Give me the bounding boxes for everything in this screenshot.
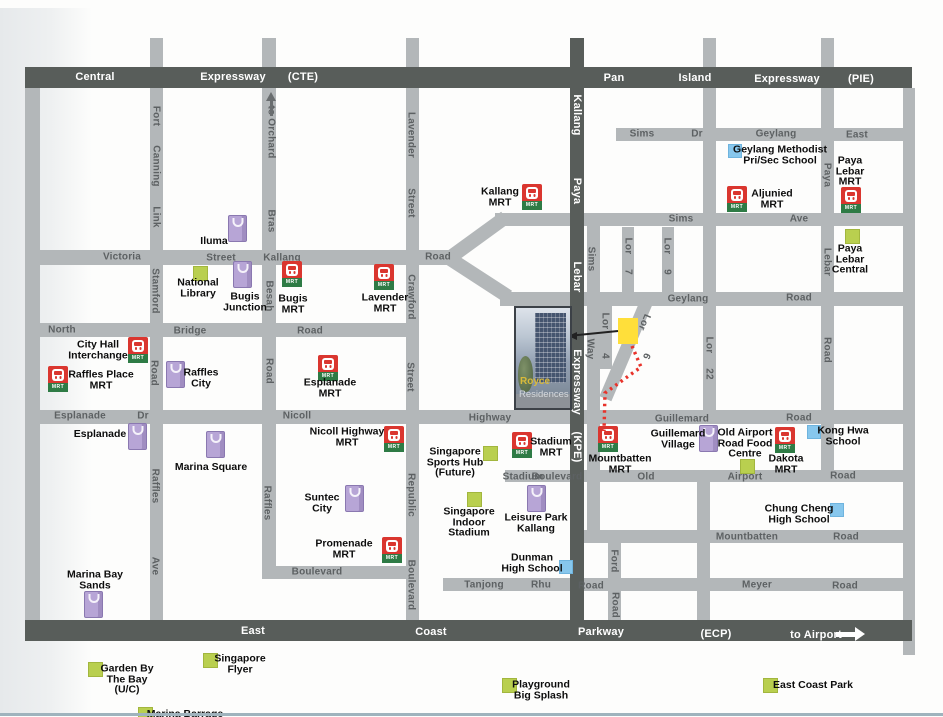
train-icon [841, 187, 861, 204]
train-icon [128, 337, 148, 354]
road-label-island: Island [679, 72, 712, 84]
label-line: High School [765, 514, 834, 525]
label-line: Leisure Park [504, 513, 567, 524]
road-label-nicoll: Nicoll [283, 411, 311, 422]
label-line: Junction [223, 302, 267, 313]
road-label--pie-: (PIE) [848, 73, 874, 85]
label-line: Lavender [362, 293, 409, 304]
road-label-way: Way [585, 339, 596, 360]
road-label-east: East [846, 130, 868, 141]
label-line: Stadium [530, 437, 571, 448]
train-icon [48, 366, 68, 383]
train-icon [382, 537, 402, 554]
label-line: Marina Bay [67, 570, 123, 581]
lavender-mrt-label: LavenderMRT [362, 293, 409, 314]
road-label-paya: Paya [822, 163, 833, 187]
label-line: Bugis [223, 292, 267, 303]
road-label-lebar: Lebar [822, 248, 833, 276]
label-line: Marina Square [175, 462, 247, 473]
iluma-building-icon [228, 215, 247, 242]
train-glyph [132, 340, 144, 352]
singapore-sports-hub-park-icon [483, 446, 498, 461]
promenade-mrt-icon: MRT [382, 537, 402, 563]
train-icon [598, 426, 618, 443]
raffles-place-mrt-icon: MRT [48, 366, 68, 392]
mrt-badge: MRT [282, 278, 302, 287]
label-line: Dunman [501, 553, 562, 564]
stadium-mrt-icon: MRT [512, 432, 532, 458]
road-label-coast: Coast [415, 626, 447, 638]
road-label-lor: Lor [662, 238, 673, 255]
road-label-expressway: Expressway [754, 73, 820, 85]
royce-residences-photo: RoyceResidences [514, 306, 572, 410]
road-label-tanjong: Tanjong [464, 580, 504, 591]
road-label-bridge: Bridge [174, 326, 207, 337]
road-label-highway: Highway [469, 413, 512, 424]
road-label-canning: Canning [151, 145, 162, 186]
train-glyph [386, 540, 398, 552]
royce-site-marker [618, 318, 638, 344]
bugis-junction-label: BugisJunction [223, 292, 267, 313]
road-label-street: Street [206, 253, 236, 264]
label-line: Promenade [315, 539, 372, 550]
city-hall-mrt-label: City HallInterchange [68, 340, 128, 361]
national-library-label: NationalLibrary [177, 278, 218, 299]
road-lor-22-road [703, 38, 716, 418]
label-line: Paya [832, 243, 868, 254]
road-label-road: Road [786, 413, 812, 424]
train-glyph [52, 369, 64, 381]
label-line: Paya [836, 155, 865, 166]
mrt-badge: MRT [382, 554, 402, 563]
suntec-city-building-icon [345, 485, 364, 512]
label-line: MRT [278, 304, 307, 315]
label-line: Stadium [443, 527, 494, 538]
train-icon [512, 432, 532, 449]
stadium-mrt-label: StadiumMRT [530, 437, 571, 458]
label-line: Iluma [200, 236, 227, 247]
label-line: East Coast Park [773, 680, 853, 691]
road-label-boulevard: Boulevard [292, 567, 343, 578]
bugis-junction-building-icon [233, 261, 252, 288]
road-label-expressway: Expressway [571, 349, 583, 415]
suntec-city-label: SuntecCity [304, 493, 339, 514]
road-label-lavender: Lavender [406, 112, 417, 158]
road-label-fort: Fort [151, 106, 162, 126]
road-label-lor: Lor [600, 313, 611, 330]
road-label-raffles: Raffles [150, 469, 161, 504]
old-airport-road-food-centre-park-icon [740, 459, 755, 474]
road-label-paya: Paya [571, 178, 583, 205]
road-label--kpe-: (KPE) [571, 432, 583, 463]
train-icon [384, 426, 404, 443]
road-label-road: Road [297, 326, 323, 337]
road-junction-lower-diagonal [444, 252, 512, 303]
road-label--ecp-: (ECP) [701, 628, 732, 640]
label-line: Chung Cheng [765, 504, 834, 515]
label-line: Mountbatten [589, 454, 652, 465]
to-airport-arrow-icon [836, 627, 866, 641]
label-line: Esplanade [304, 378, 357, 389]
raffles-city-label: RafflesCity [183, 368, 218, 389]
road-label-east: East [241, 625, 265, 637]
road-north-bridge-road [25, 323, 415, 337]
label-line: Village [651, 439, 706, 450]
label-line: Central [832, 264, 868, 275]
label-line: Sands [67, 580, 123, 591]
road-label-9: 9 [662, 269, 673, 275]
road-label-road: Road [786, 293, 812, 304]
train-icon [775, 427, 795, 444]
singapore-flyer-label: SingaporeFlyer [214, 654, 265, 675]
label-line: Raffles [183, 368, 218, 379]
esplanade-theatre-label: Esplanade [74, 429, 127, 440]
train-glyph [845, 190, 857, 202]
road-label-rhu: Rhu [531, 580, 551, 591]
road-label-parkway: Parkway [578, 626, 624, 638]
train-glyph [779, 430, 791, 442]
road-east-coast-parkway [25, 620, 912, 641]
label-line: Garden By [100, 663, 153, 674]
road-label-republic: Republic [406, 473, 417, 517]
road-label-mountbatten: Mountbatten [716, 532, 778, 543]
marina-bay-sands-building-icon [84, 591, 103, 618]
mrt-badge: MRT [841, 204, 861, 213]
train-glyph [526, 187, 538, 199]
label-line: Centre [717, 448, 772, 459]
label-line: High School [501, 563, 562, 574]
road-label-road: Road [830, 471, 856, 482]
label-line: Kallang [481, 187, 519, 198]
label-line: Suntec [304, 493, 339, 504]
leisure-park-kallang-building-icon [527, 485, 546, 512]
label-line: MRT [530, 447, 571, 458]
mountbatten-mrt-label: MountbattenMRT [589, 454, 652, 475]
raffles-place-mrt-label: Raffles PlaceMRT [68, 370, 133, 391]
chung-cheng-high-school-label: Chung ChengHigh School [765, 504, 834, 525]
building-shape [535, 313, 566, 383]
label-line: Singapore [443, 506, 494, 517]
road-label-kallang: Kallang [571, 94, 583, 135]
road-label-ford: Ford [609, 549, 620, 572]
project-name-line2: Residences [519, 389, 569, 400]
road-label-4: 4 [600, 353, 611, 359]
road-label-road: Road [425, 252, 451, 263]
road-label-street: Street [405, 362, 416, 392]
road-label-link: Link [151, 206, 162, 227]
marina-bay-sands-label: Marina BaySands [67, 570, 123, 591]
road-label-22: 22 [704, 368, 715, 380]
road-label-to-airport: to Airport [790, 629, 842, 641]
label-line: Interchange [68, 350, 128, 361]
mrt-badge: MRT [598, 443, 618, 452]
road-label-north: North [48, 325, 76, 336]
promenade-mrt-label: PromenadeMRT [315, 539, 372, 560]
paya-lebar-central-label: PayaLebarCentral [832, 243, 868, 275]
road-label-lor: Lor [623, 238, 634, 255]
road-label-road: Road [833, 532, 859, 543]
esplanade-theatre-building-icon [128, 423, 147, 450]
label-line: City [304, 503, 339, 514]
road-label-raffles: Raffles [262, 486, 273, 521]
kong-hwa-school-label: Kong HwaSchool [817, 426, 868, 447]
label-line: Old Airport [717, 427, 772, 438]
kallang-mrt-icon: MRT [522, 184, 542, 210]
geylang-methodist-school-label: Geylang MethodistPri/Sec School [733, 145, 827, 166]
label-line: MRT [310, 437, 385, 448]
label-line: Big Splash [512, 690, 570, 701]
label-line: National [177, 278, 218, 289]
road-label-expressway: Expressway [200, 71, 266, 83]
train-icon [727, 186, 747, 203]
road-label-road: Road [832, 581, 858, 592]
label-line: Nicoll Highway [310, 427, 385, 438]
road-label-stamford: Stamford [150, 268, 161, 314]
iluma-label: Iluma [200, 236, 227, 247]
road-label-road: Road [822, 337, 833, 363]
label-line: MRT [768, 464, 803, 475]
mrt-badge: MRT [374, 281, 394, 290]
road-label-victoria: Victoria [103, 252, 141, 263]
label-line: Kallang [504, 523, 567, 534]
road-label-geylang: Geylang [756, 129, 797, 140]
road-label-road: Road [264, 358, 275, 384]
train-glyph [322, 358, 334, 370]
train-glyph [388, 429, 400, 441]
label-line: (Future) [427, 467, 484, 478]
kallang-mrt-label: KallangMRT [481, 187, 519, 208]
old-airport-road-food-centre-label: Old AirportRoad FoodCentre [717, 427, 772, 459]
label-line: Esplanade [74, 429, 127, 440]
garden-by-the-bay-label: Garden ByThe Bay(U/C) [100, 663, 153, 695]
road-label-road: Road [149, 360, 160, 386]
bugis-mrt-icon: MRT [282, 261, 302, 287]
road-label-sims: Sims [630, 129, 655, 140]
page-bottom-edge [0, 713, 943, 716]
train-glyph [378, 267, 390, 279]
dunman-high-school-label: DunmanHigh School [501, 553, 562, 574]
train-glyph [516, 435, 528, 447]
label-line: Geylang Methodist [733, 145, 827, 156]
road-right-edge-road [903, 88, 915, 655]
road-label-sims: Sims [669, 214, 694, 225]
singapore-indoor-stadium-label: SingaporeIndoorStadium [443, 506, 494, 538]
label-line: Aljunied [751, 189, 792, 200]
label-line: School [817, 436, 868, 447]
train-glyph [731, 189, 743, 201]
train-icon [318, 355, 338, 372]
label-line: Flyer [214, 664, 265, 675]
road-label-ave: Ave [150, 557, 161, 576]
esplanade-mrt-label: EsplanadeMRT [304, 378, 357, 399]
label-line: Kong Hwa [817, 426, 868, 437]
road-label-street: Street [406, 188, 417, 218]
singapore-sports-hub-label: SingaporeSports Hub(Future) [427, 446, 484, 478]
label-line: Pri/Sec School [733, 155, 827, 166]
mountbatten-mrt-icon: MRT [598, 426, 618, 452]
marina-square-building-icon [206, 431, 225, 458]
road-label-guillemard: Guillemard [655, 414, 709, 425]
road-far-left-road [25, 78, 40, 626]
road-label-sims: Sims [586, 247, 597, 272]
lavender-mrt-icon: MRT [374, 264, 394, 290]
label-line: MRT [68, 380, 133, 391]
mrt-badge: MRT [48, 383, 68, 392]
label-line: Singapore [214, 654, 265, 665]
nicoll-highway-mrt-label: Nicoll HighwayMRT [310, 427, 385, 448]
mrt-badge: MRT [512, 449, 532, 458]
label-line: MRT [362, 303, 409, 314]
label-line: Playground [512, 680, 570, 691]
road-label-bras: Bras [266, 209, 277, 232]
royce-residences-location-map: CentralExpressway(CTE)PanIslandExpresswa… [0, 0, 943, 717]
train-icon [522, 184, 542, 201]
paya-lebar-mrt-icon: MRT [841, 187, 861, 213]
road-label-road: Road [610, 592, 621, 618]
leisure-park-kallang-label: Leisure ParkKallang [504, 513, 567, 534]
label-line: Raffles Place [68, 370, 133, 381]
road-label-7: 7 [623, 269, 634, 275]
road-label-ave: Ave [790, 214, 809, 225]
label-line: City [183, 378, 218, 389]
city-hall-mrt-icon: MRT [128, 337, 148, 363]
label-line: MRT [751, 199, 792, 210]
label-line: MRT [315, 549, 372, 560]
label-line: MRT [304, 388, 357, 399]
road-label-central: Central [75, 71, 114, 83]
mrt-badge: MRT [727, 203, 747, 212]
to-orchard-arrow-icon [265, 92, 277, 118]
label-line: Bugis [278, 294, 307, 305]
road-label-boulevard: Boulevard [532, 472, 583, 483]
label-line: Library [177, 288, 218, 299]
road-label-lebar: Lebar [571, 262, 583, 293]
aljunied-mrt-icon: MRT [727, 186, 747, 212]
road-south-vertical-road [697, 477, 710, 620]
dakota-mrt-icon: MRT [775, 427, 795, 453]
road-label-esplanade: Esplanade [54, 411, 106, 422]
road-label-meyer: Meyer [742, 580, 772, 591]
nicoll-highway-mrt-icon: MRT [384, 426, 404, 452]
label-line: Dakota [768, 454, 803, 465]
mrt-badge: MRT [522, 201, 542, 210]
road-label-dr: Dr [137, 411, 149, 422]
project-name: Royce [520, 376, 550, 387]
raffles-city-building-icon [166, 361, 185, 388]
label-line: MRT [481, 197, 519, 208]
train-icon [374, 264, 394, 281]
mrt-badge: MRT [128, 354, 148, 363]
train-glyph [602, 429, 614, 441]
road-label-pan: Pan [604, 72, 625, 84]
road-label-lor: Lor [704, 337, 715, 354]
east-coast-park-label: East Coast Park [773, 680, 853, 691]
road-label--cte-: (CTE) [288, 71, 318, 83]
train-icon [282, 261, 302, 278]
guillemard-village-label: GuillemardVillage [651, 429, 706, 450]
dakota-mrt-label: DakotaMRT [768, 454, 803, 475]
road-label-dr: Dr [691, 129, 703, 140]
label-line: City Hall [68, 340, 128, 351]
bugis-mrt-label: BugisMRT [278, 294, 307, 315]
road-label-road: Road [578, 581, 604, 592]
mrt-badge: MRT [384, 443, 404, 452]
aljunied-mrt-label: AljuniedMRT [751, 189, 792, 210]
label-line: (U/C) [100, 684, 153, 695]
marina-square-label: Marina Square [175, 462, 247, 473]
road-label-geylang: Geylang [668, 294, 709, 305]
train-glyph [286, 264, 298, 276]
paya-lebar-mrt-label: PayaLebarMRT [836, 155, 865, 187]
road-label-boulevard: Boulevard [406, 560, 417, 611]
label-line: Guillemard [651, 429, 706, 440]
label-line: MRT [589, 464, 652, 475]
label-line: Singapore [427, 446, 484, 457]
label-line: MRT [836, 176, 865, 187]
road-label-6: 6 [640, 351, 652, 361]
playground-big-splash-label: PlaygroundBig Splash [512, 680, 570, 701]
